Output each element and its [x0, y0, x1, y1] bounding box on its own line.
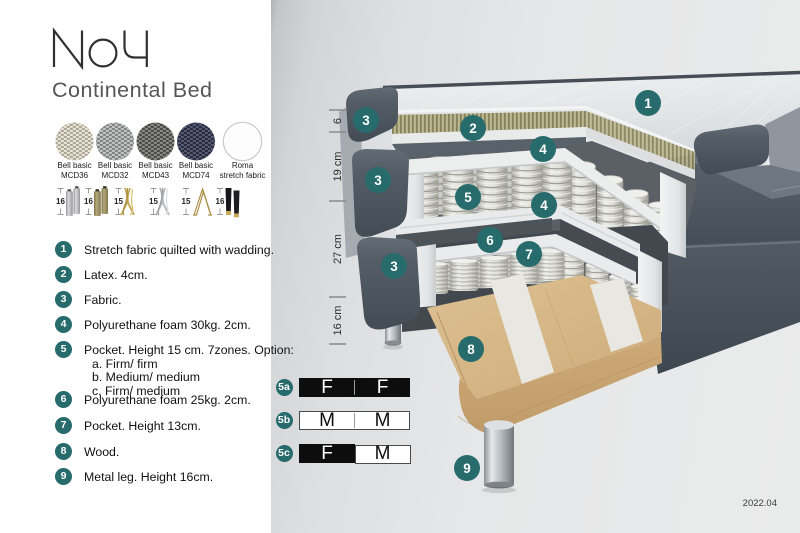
svg-text:3: 3 — [374, 173, 382, 188]
svg-text:7: 7 — [525, 247, 533, 262]
svg-text:Bell basic: Bell basic — [179, 161, 213, 170]
svg-text:1: 1 — [644, 96, 652, 111]
svg-text:MCD43: MCD43 — [142, 171, 170, 180]
svg-text:5: 5 — [464, 190, 472, 205]
svg-text:4: 4 — [539, 142, 547, 157]
svg-text:2: 2 — [469, 121, 477, 136]
svg-text:Bell basic: Bell basic — [138, 161, 172, 170]
svg-text:Bell basic: Bell basic — [98, 161, 132, 170]
svg-text:8: 8 — [467, 342, 475, 357]
svg-text:6: 6 — [332, 118, 344, 124]
svg-text:27 cm: 27 cm — [332, 234, 344, 264]
svg-text:19 cm: 19 cm — [332, 152, 344, 182]
svg-text:Bell basic: Bell basic — [57, 161, 91, 170]
svg-text:9: 9 — [463, 461, 471, 476]
svg-text:MCD74: MCD74 — [182, 171, 210, 180]
svg-text:MCD36: MCD36 — [61, 171, 89, 180]
svg-text:3: 3 — [362, 113, 370, 128]
svg-text:6: 6 — [486, 233, 494, 248]
svg-text:16: 16 — [84, 197, 93, 206]
svg-text:stretch fabric: stretch fabric — [220, 171, 266, 180]
svg-text:3: 3 — [390, 259, 398, 274]
svg-text:15: 15 — [149, 197, 158, 206]
svg-text:16 cm: 16 cm — [332, 306, 344, 336]
svg-text:MCD32: MCD32 — [101, 171, 129, 180]
svg-text:4: 4 — [540, 198, 548, 213]
svg-text:16: 16 — [216, 197, 225, 206]
svg-text:15: 15 — [114, 197, 123, 206]
svg-text:Roma: Roma — [232, 161, 254, 170]
svg-text:16: 16 — [56, 197, 65, 206]
svg-text:15: 15 — [182, 197, 191, 206]
